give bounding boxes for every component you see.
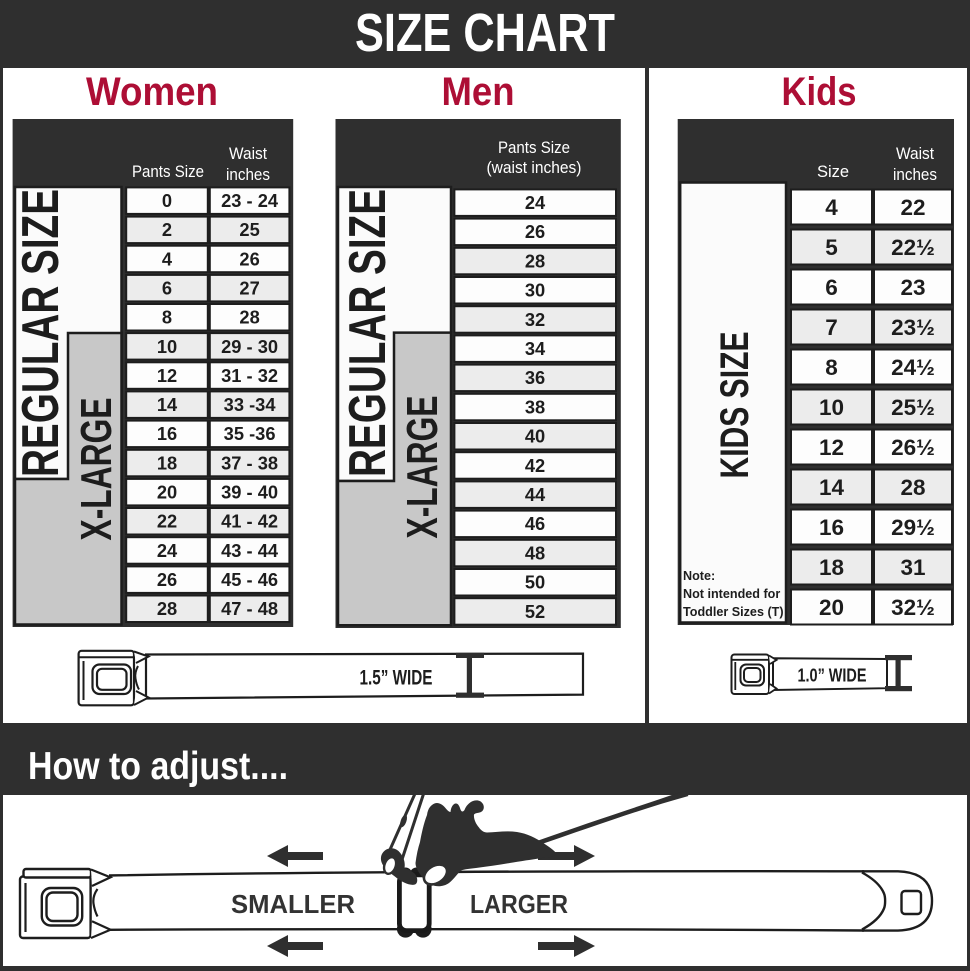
svg-text:Not intended for: Not intended for	[683, 587, 780, 601]
svg-text:26: 26	[157, 569, 177, 590]
svg-text:16: 16	[819, 515, 844, 540]
svg-text:24: 24	[157, 540, 178, 561]
svg-text:48: 48	[525, 542, 545, 563]
svg-text:26½: 26½	[891, 435, 935, 460]
svg-text:Kids: Kids	[782, 70, 857, 114]
svg-text:44: 44	[525, 484, 546, 505]
svg-text:26: 26	[525, 221, 545, 242]
svg-text:29 - 30: 29 - 30	[221, 336, 278, 357]
svg-text:32½: 32½	[891, 595, 935, 620]
svg-text:40: 40	[525, 426, 545, 447]
svg-text:10: 10	[819, 395, 844, 420]
svg-text:23: 23	[900, 275, 925, 300]
svg-text:32: 32	[525, 309, 545, 330]
svg-text:Waist: Waist	[896, 145, 934, 163]
svg-text:22: 22	[900, 195, 925, 220]
svg-text:How to adjust....: How to adjust....	[28, 745, 288, 788]
svg-text:28: 28	[157, 598, 177, 619]
svg-text:12: 12	[157, 365, 177, 386]
svg-text:36: 36	[525, 367, 545, 388]
svg-text:REGULAR SIZE: REGULAR SIZE	[12, 189, 70, 477]
svg-text:37 - 38: 37 - 38	[221, 452, 278, 473]
svg-text:24½: 24½	[891, 355, 935, 380]
svg-text:Men: Men	[442, 70, 515, 114]
svg-text:27: 27	[239, 278, 259, 299]
svg-text:Waist: Waist	[229, 145, 267, 163]
svg-text:23 - 24: 23 - 24	[221, 190, 279, 211]
svg-text:KIDS SIZE: KIDS SIZE	[713, 332, 757, 479]
svg-text:47 - 48: 47 - 48	[221, 598, 278, 619]
svg-text:inches: inches	[226, 166, 270, 184]
svg-text:10: 10	[157, 336, 177, 357]
svg-text:8: 8	[825, 355, 838, 380]
svg-text:SMALLER: SMALLER	[231, 889, 355, 919]
svg-text:35 -36: 35 -36	[224, 423, 276, 444]
svg-text:50: 50	[525, 572, 545, 593]
svg-text:31 - 32: 31 - 32	[221, 365, 278, 386]
svg-text:Pants Size: Pants Size	[132, 163, 204, 181]
svg-text:18: 18	[157, 452, 177, 473]
svg-text:Note:: Note:	[683, 569, 715, 583]
svg-text:Pants Size: Pants Size	[498, 139, 570, 157]
svg-text:24: 24	[525, 192, 546, 213]
svg-text:23½: 23½	[891, 315, 935, 340]
svg-text:20: 20	[157, 482, 177, 503]
svg-text:42: 42	[525, 455, 545, 476]
svg-text:Women: Women	[86, 70, 218, 114]
svg-text:1.0” WIDE: 1.0” WIDE	[798, 666, 867, 686]
svg-text:16: 16	[157, 423, 177, 444]
svg-text:38: 38	[525, 396, 545, 417]
svg-text:Size: Size	[817, 163, 849, 181]
svg-text:6: 6	[162, 278, 172, 299]
svg-text:1.5” WIDE: 1.5” WIDE	[360, 667, 433, 690]
svg-text:28: 28	[900, 475, 925, 500]
svg-text:Toddler Sizes (T): Toddler Sizes (T)	[683, 605, 784, 619]
svg-text:28: 28	[239, 307, 259, 328]
svg-text:45 - 46: 45 - 46	[221, 569, 278, 590]
svg-text:2: 2	[162, 219, 172, 240]
svg-text:LARGER: LARGER	[470, 889, 568, 919]
svg-text:22½: 22½	[891, 235, 935, 260]
svg-text:33 -34: 33 -34	[224, 394, 277, 415]
svg-text:REGULAR SIZE: REGULAR SIZE	[339, 189, 397, 477]
svg-text:X-LARGE: X-LARGE	[398, 396, 447, 539]
svg-text:7: 7	[825, 315, 838, 340]
svg-text:41 - 42: 41 - 42	[221, 511, 278, 532]
svg-text:inches: inches	[893, 166, 937, 184]
svg-text:25½: 25½	[891, 395, 935, 420]
svg-text:30: 30	[525, 280, 545, 301]
svg-text:26: 26	[239, 248, 259, 269]
svg-text:20: 20	[819, 595, 844, 620]
svg-text:46: 46	[525, 513, 545, 534]
svg-text:0: 0	[162, 190, 172, 211]
svg-text:14: 14	[819, 475, 845, 500]
svg-text:14: 14	[157, 394, 178, 415]
svg-text:8: 8	[162, 307, 172, 328]
svg-text:43 - 44: 43 - 44	[221, 540, 279, 561]
svg-text:31: 31	[900, 555, 925, 580]
svg-text:52: 52	[525, 601, 545, 622]
svg-text:4: 4	[825, 195, 838, 220]
svg-text:SIZE CHART: SIZE CHART	[355, 3, 615, 63]
svg-text:29½: 29½	[891, 515, 935, 540]
svg-text:12: 12	[819, 435, 844, 460]
svg-text:22: 22	[157, 511, 177, 532]
svg-text:(waist inches): (waist inches)	[487, 159, 582, 177]
svg-text:4: 4	[162, 248, 173, 269]
svg-text:5: 5	[825, 235, 838, 260]
svg-text:28: 28	[525, 250, 545, 271]
svg-text:X-LARGE: X-LARGE	[72, 398, 121, 541]
svg-text:18: 18	[819, 555, 844, 580]
svg-text:25: 25	[239, 219, 259, 240]
svg-text:39 - 40: 39 - 40	[221, 482, 278, 503]
svg-text:34: 34	[525, 338, 546, 359]
svg-text:6: 6	[825, 275, 838, 300]
